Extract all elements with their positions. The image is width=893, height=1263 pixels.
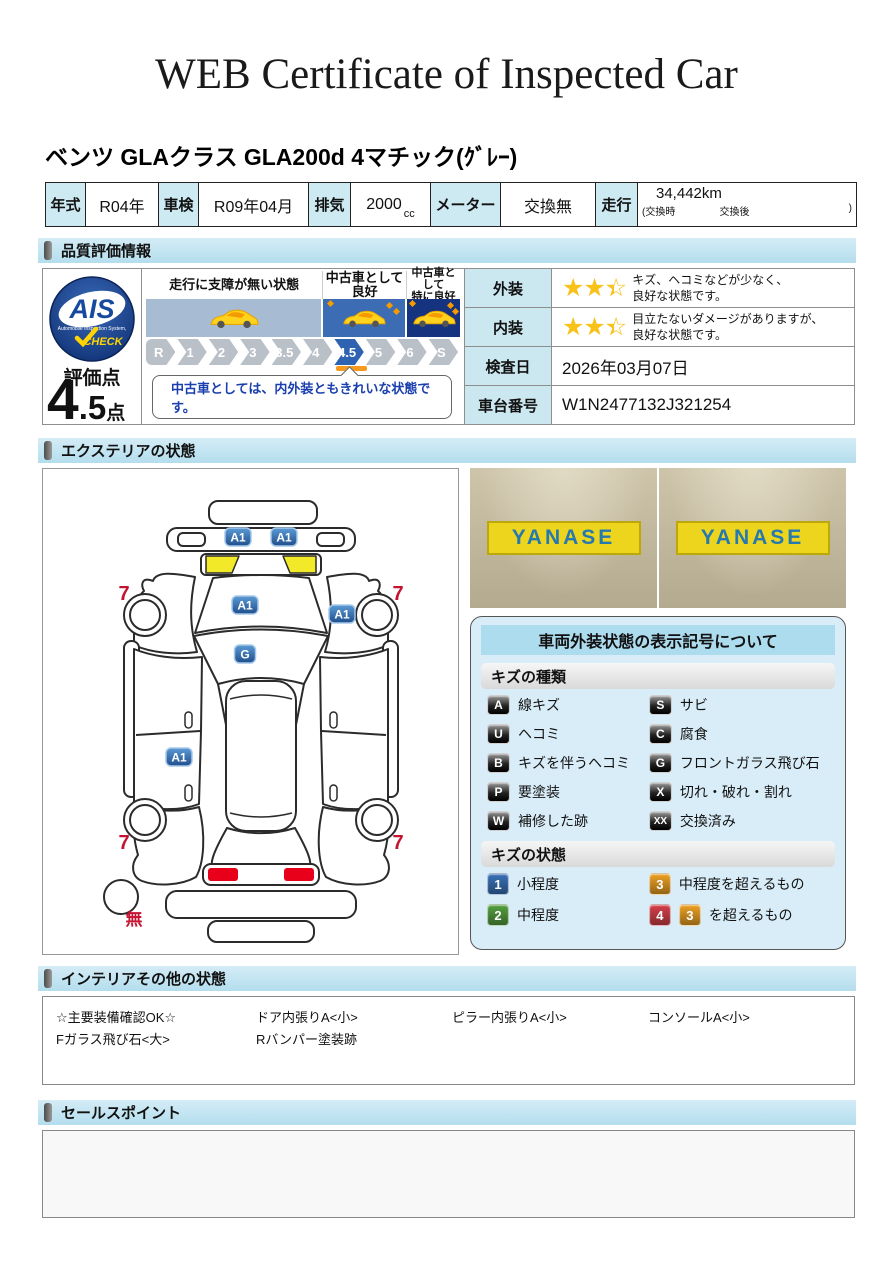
interior-note-item: コンソールA<小> (648, 1007, 854, 1026)
table-row-chassis-number: 車台番号 W1N2477132J321254 (465, 386, 854, 424)
damage-code-badge-A: A (487, 695, 510, 715)
damage-marker-G-4: G (235, 645, 256, 663)
legend-kind-item-S: Sサビ (649, 695, 835, 715)
spec-value-2: 2000cc (351, 183, 431, 226)
mileage-value: 34,442km (642, 185, 852, 202)
legend-kind-label: フロントガラス飛び石 (680, 753, 820, 773)
svg-text:A1: A1 (230, 531, 246, 545)
mileage-notes: (交換時交換後) (642, 203, 852, 218)
yanase-sign: YANASE (676, 521, 830, 555)
section-marker (44, 241, 52, 260)
damage-code-badge-B: B (487, 753, 510, 773)
legend-kind-item-X: X切れ・破れ・割れ (649, 782, 835, 802)
chassis-number-value: W1N2477132J321254 (552, 386, 854, 424)
interior-note-item: Fガラス飛び石<大> (56, 1029, 256, 1048)
damage-legend-panel: 車両外装状態の表示記号について キズの種類 A線キズSサビUヘコミC腐食Bキズを… (470, 616, 846, 950)
table-row-inspection-date: 検査日 2026年03月07日 (465, 347, 854, 386)
svg-text:A1: A1 (334, 608, 350, 622)
sales-points-box (42, 1130, 855, 1218)
exterior-photos: YANASE YANASE (470, 468, 846, 608)
scale-zone-label-0: 走行に支障が無い状態 (146, 271, 322, 299)
spec-value-3: 交換無 (501, 183, 596, 226)
scale-band-segment-2 (405, 299, 460, 337)
scale-zone-label-1: 中古車として良好 (322, 271, 406, 299)
legend-kind-label: 補修した跡 (518, 811, 588, 831)
scale-band-segment-0 (146, 299, 321, 337)
damage-code-badge-U: U (487, 724, 510, 744)
legend-state-item-4: 43を超えるもの (649, 904, 835, 926)
car-icon (209, 308, 259, 335)
legend-kind-item-U: Uヘコミ (487, 724, 649, 744)
damage-marker-A1-2: A1 (232, 596, 258, 614)
star-rating-exterior: ★★☆★ (562, 273, 626, 303)
legend-kind-grid: A線キズSサビUヘコミC腐食Bキズを伴うヘコミGフロントガラス飛び石P要塗装X切… (487, 695, 835, 831)
legend-state-header: キズの状態 (481, 841, 835, 867)
row-label-exterior: 外装 (465, 269, 552, 307)
scale-band-segment-1 (321, 299, 405, 337)
photo-showroom-1: YANASE (470, 468, 657, 608)
severity-badge-4: 4 (649, 904, 671, 926)
photo-showroom-2: YANASE (659, 468, 846, 608)
mileage-note-mid: 交換後 (720, 203, 750, 218)
legend-state-item-3: 3中程度を超えるもの (649, 873, 835, 895)
car-damage-diagram: A1A1A1A1GA17777無 (46, 473, 456, 951)
interior-notes-box: ☆主要装備確認OK☆ドア内張りA<小>ピラー内張りA<小>コンソールA<小>Fガ… (42, 996, 855, 1085)
legend-kind-label: ヘコミ (518, 724, 560, 744)
yanase-sign: YANASE (487, 521, 641, 555)
spec-value-1: R09年04月 (199, 183, 309, 226)
damage-code-badge-C: C (649, 724, 672, 744)
section-header-interior: インテリアその他の状態 (38, 966, 856, 991)
severity-badge-1: 1 (487, 873, 509, 895)
spec-value-0: R04年 (86, 183, 159, 226)
section-title-interior: インテリアその他の状態 (61, 968, 226, 989)
scale-zone-label-2: 中古車として 特に良好 (406, 271, 460, 299)
car-diagram-box: A1A1A1A1GA17777無 (42, 468, 459, 955)
svg-text:CHECK: CHECK (83, 336, 123, 348)
quality-detail-table: 外装 ★★☆★ キズ、ヘコミなどが少なく、 良好な状態です。 内装 ★★☆★ 目… (465, 269, 854, 424)
rating-note-interior: 目立たないダメージがありますが、 良好な状態です。 (632, 311, 823, 343)
svg-text:A1: A1 (237, 599, 253, 613)
svg-text:AIS: AIS (68, 294, 114, 324)
star-rating-interior: ★★☆★ (562, 312, 626, 342)
spec-table: 年式R04年車検R09年04月排気2000ccメーター交換無走行34,442km… (45, 182, 857, 227)
legend-kind-item-W: W補修した跡 (487, 811, 649, 831)
tire-depth-label-3: 7 (392, 832, 403, 854)
sparkle-icon (327, 299, 334, 306)
scale-step-3.5: 3.5 (272, 339, 301, 365)
score-value: 4.5点 (47, 372, 145, 429)
legend-kind-label: 要塗装 (518, 782, 560, 802)
vehicle-name: ベンツ GLAクラス GLA200d 4マチック(ｸﾞﾚｰ) (45, 138, 517, 172)
legend-state-label: を超えるもの (709, 905, 793, 925)
legend-kind-label: 線キズ (518, 695, 560, 715)
tire-depth-label-2: 7 (118, 832, 129, 854)
score-comment: 中古車としては、内外装ともきれいな状態です。 (171, 378, 451, 416)
legend-kind-label: 切れ・破れ・割れ (680, 782, 792, 802)
legend-kind-label: 交換済み (680, 811, 736, 831)
spec-header-1: 車検 (159, 183, 199, 226)
legend-state-grid: 1小程度3中程度を超えるもの2中程度43を超えるもの (487, 873, 835, 926)
legend-kind-label: サビ (680, 695, 708, 715)
severity-badge-3: 3 (679, 904, 701, 926)
damage-code-badge-P: P (487, 782, 510, 802)
legend-kind-item-C: C腐食 (649, 724, 835, 744)
damage-code-badge-X: X (649, 782, 672, 802)
legend-kind-item-G: Gフロントガラス飛び石 (649, 753, 835, 773)
legend-state-item-2: 2中程度 (487, 904, 649, 926)
mileage-note-left: (交換時 (642, 203, 675, 218)
scale-step-1: 1 (177, 339, 206, 365)
damage-marker-A1-3: A1 (329, 605, 355, 623)
scale-step-6: 6 (397, 339, 426, 365)
damage-code-badge-XX: XX (649, 811, 672, 831)
damage-code-badge-G: G (649, 753, 672, 773)
rating-scale-panel: 走行に支障が無い状態中古車として良好中古車として 特に良好 R1233.544.… (142, 269, 465, 424)
legend-kind-item-A: A線キズ (487, 695, 649, 715)
section-title-exterior: エクステリアの状態 (61, 440, 196, 461)
half-star-icon: ☆★ (605, 273, 626, 303)
damage-code-badge-W: W (487, 811, 510, 831)
spec-header-4: 走行 (596, 183, 638, 226)
legend-title: 車両外装状態の表示記号について (481, 625, 835, 655)
interior-note-item: ☆主要装備確認OK☆ (56, 1007, 256, 1026)
certificate-page: WEB Certificate of Inspected Car ベンツ GLA… (0, 0, 893, 1263)
scale-chevrons: R1233.544.556S (146, 339, 460, 365)
svg-text:A1: A1 (171, 751, 187, 765)
spec-header-2: 排気 (309, 183, 351, 226)
legend-state-item-1: 1小程度 (487, 873, 649, 895)
spec-header-0: 年式 (46, 183, 86, 226)
section-title-quality: 品質評価情報 (61, 240, 151, 261)
section-marker (44, 1103, 52, 1122)
scale-step-4: 4 (303, 339, 332, 365)
quality-box: AIS Automobile Inspection System, CHECK … (42, 268, 855, 425)
section-header-sales: セールスポイント (38, 1100, 856, 1125)
score-frac: .5 (79, 389, 107, 426)
table-row-interior: 内装 ★★☆★ 目立たないダメージがありますが、 良好な状態です。 (465, 308, 854, 347)
spec-header-3: メーター (431, 183, 501, 226)
damage-marker-A1-1: A1 (271, 528, 297, 546)
scale-step-R: R (146, 339, 175, 365)
damage-marker-A1-0: A1 (225, 528, 251, 546)
ais-panel: AIS Automobile Inspection System, CHECK … (43, 269, 142, 424)
scale-step-4.5: 4.5 (334, 339, 363, 365)
spec-value-4: 34,442km(交換時交換後) (638, 183, 856, 226)
section-header-quality: 品質評価情報 (38, 238, 856, 263)
row-label-chassis-number: 車台番号 (465, 386, 552, 424)
legend-state-label: 中程度を超えるもの (679, 874, 805, 894)
legend-kind-label: キズを伴うヘコミ (518, 753, 630, 773)
section-title-sales: セールスポイント (61, 1102, 181, 1123)
scale-step-S: S (429, 339, 458, 365)
section-marker (44, 441, 52, 460)
row-label-inspection-date: 検査日 (465, 347, 552, 385)
svg-text:A1: A1 (276, 531, 292, 545)
scale-zone-labels: 走行に支障が無い状態中古車として良好中古車として 特に良好 (146, 271, 460, 299)
row-label-interior: 内装 (465, 308, 552, 346)
scale-step-5: 5 (366, 339, 395, 365)
legend-kind-header: キズの種類 (481, 663, 835, 689)
legend-kind-item-XX: XX交換済み (649, 811, 835, 831)
score-comment-bubble: 中古車としては、内外装ともきれいな状態です。 (152, 375, 452, 419)
legend-kind-item-P: P要塗装 (487, 782, 649, 802)
tire-depth-label-0: 7 (118, 583, 129, 605)
score-unit: 点 (106, 403, 125, 424)
legend-state-label: 中程度 (517, 905, 559, 925)
legend-kind-item-B: Bキズを伴うヘコミ (487, 753, 649, 773)
half-star-icon: ☆★ (605, 312, 626, 342)
page-title: WEB Certificate of Inspected Car (0, 50, 893, 99)
section-marker (44, 969, 52, 988)
interior-note-item: ドア内張りA<小> (256, 1007, 452, 1026)
interior-notes-row-0: ☆主要装備確認OK☆ドア内張りA<小>ピラー内張りA<小>コンソールA<小> (56, 1005, 854, 1027)
scale-step-3: 3 (240, 339, 269, 365)
svg-text:G: G (240, 648, 249, 662)
interior-note-item: ピラー内張りA<小> (452, 1007, 648, 1026)
rating-note-exterior: キズ、ヘコミなどが少なく、 良好な状態です。 (632, 272, 788, 304)
table-row-exterior: 外装 ★★☆★ キズ、ヘコミなどが少なく、 良好な状態です。 (465, 269, 854, 308)
legend-state-label: 小程度 (517, 874, 559, 894)
sparkle-icon (409, 299, 416, 306)
scale-step-2: 2 (209, 339, 238, 365)
ais-logo-icon: AIS Automobile Inspection System, CHECK (49, 276, 135, 362)
damage-code-badge-S: S (649, 695, 672, 715)
sparkle-icon (393, 308, 400, 315)
interior-note-item: Rバンパー塗装跡 (256, 1029, 452, 1048)
sparkle-icon (386, 302, 393, 309)
scale-band (146, 299, 460, 337)
car-icon (412, 308, 456, 335)
damage-marker-A1-5: A1 (166, 748, 192, 766)
mileage-note-close: ) (849, 203, 852, 218)
severity-badge-2: 2 (487, 904, 509, 926)
car-icon (342, 308, 386, 335)
tire-depth-label-1: 7 (392, 583, 403, 605)
interior-notes-row-1: Fガラス飛び石<大>Rバンパー塗装跡 (56, 1027, 854, 1049)
inspection-date-value: 2026年03月07日 (552, 347, 854, 385)
score-int: 4 (47, 368, 79, 432)
severity-badge-3: 3 (649, 873, 671, 895)
legend-kind-label: 腐食 (680, 724, 708, 744)
spare-tire-label: 無 (126, 909, 143, 929)
section-header-exterior: エクステリアの状態 (38, 438, 856, 463)
